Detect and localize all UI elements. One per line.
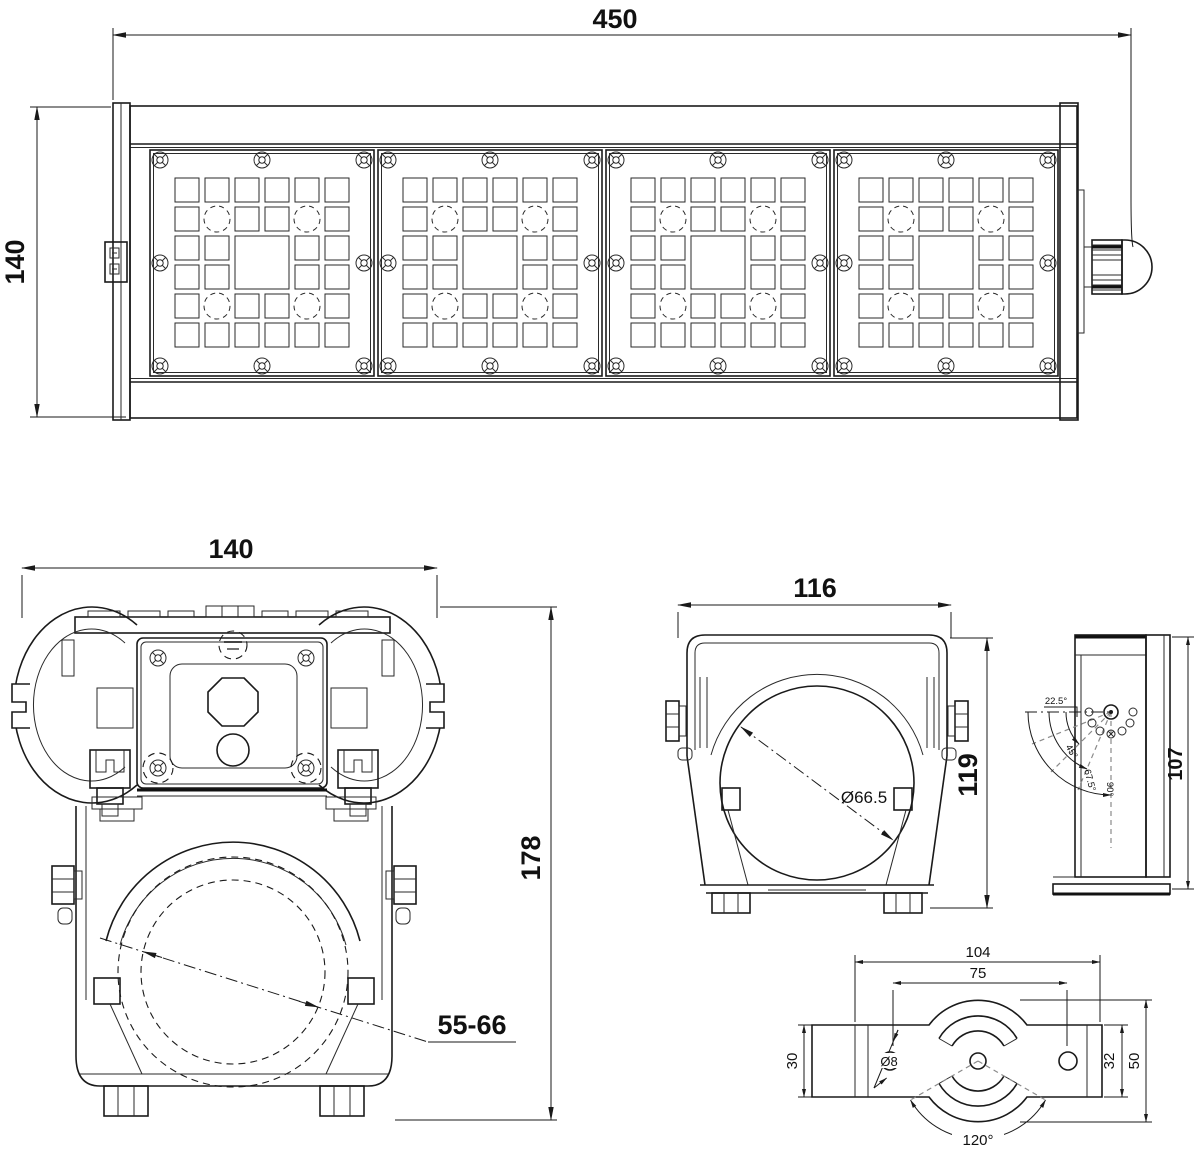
pole-circle-55 [141,880,325,1064]
bracket-front-view: 116 119 [666,573,993,913]
left-ear [2,607,137,803]
led-module-3 [606,150,830,376]
dim-plate-inner-height-label: 32 [1101,1053,1118,1070]
fixture-housing [105,103,1152,420]
left-connector [105,242,127,282]
bracket-side-view: 107 22.5° 45° 67.5° 90° [1025,635,1194,894]
dim-slot-angle-label: 120° [962,1132,993,1149]
bottom-hole [217,734,249,766]
dim-plate-inner-height: 32 [1101,1025,1128,1097]
bolt-right [386,866,416,924]
mount-plate-view: 104 75 30 32 50 [784,944,1152,1149]
arc-slot-upper [939,1016,1017,1046]
dim-plate-left-height: 30 [784,1025,812,1097]
led-module-1 [150,150,374,376]
led-module-2 [378,150,602,376]
clamp-left [90,750,130,816]
angle-90-label: 90° [1104,782,1115,797]
dim-hole-dia-label: Ø8 [880,1054,897,1069]
dim-hole-spacing: 75 [893,965,1067,1046]
dim-front-width-label: 450 [592,4,637,34]
angle-67-label: 67.5° [1081,768,1097,793]
dim-bore-label: Ø66.5 [841,788,887,807]
led-module-4 [834,150,1058,376]
right-end-cap [1060,103,1078,420]
bracket-body [666,635,968,913]
dim-hole-dia: Ø8 [874,1030,901,1088]
dim-pole-range: 55-66 [100,938,516,1042]
bolt-left [52,866,82,924]
dim-side-height-label: 107 [1165,747,1187,780]
stamp-mark [219,631,247,659]
center-plate [137,631,327,796]
angle-22-label: 22.5° [1045,696,1067,707]
end-view: 140 178 [2,534,557,1120]
dim-slot-angle: 120° [911,1061,1046,1149]
dim-bracket-width: 116 [678,573,951,638]
dim-plate-overall-height-label: 50 [1126,1053,1143,1070]
dim-hole-spacing-label: 75 [970,965,987,982]
dim-front-height-label: 140 [0,239,30,284]
dim-end-height-label: 178 [516,835,546,880]
dim-end-height: 178 [395,607,557,1120]
dim-plate-left-height-label: 30 [784,1053,801,1070]
dim-bracket-height-label: 119 [953,753,983,797]
dim-front-width: 450 [113,4,1133,247]
right-ear [319,607,454,803]
clamp-right [338,750,378,816]
dim-pole-range-label: 55-66 [437,1010,506,1040]
dim-plate-overall-width-label: 104 [965,944,990,961]
arc-slot-lower [939,1076,1017,1106]
pole-circle-66 [118,857,348,1087]
dim-end-width: 140 [22,534,437,618]
heatsink-profile [2,606,454,816]
dim-front-height: 140 [0,107,126,417]
bracket-bolt-left [666,701,692,760]
hex-hole [208,678,258,726]
cable-gland [1084,240,1152,294]
dim-bore: Ø66.5 [741,727,893,840]
bracket-bolt-right [942,701,968,760]
plate-hole-right [1059,1052,1077,1070]
end-view-bracket [52,797,416,1116]
drawing-page: 450 140 [0,0,1200,1150]
dim-bracket-width-label: 116 [793,573,837,603]
technical-drawing: 450 140 [0,0,1200,1150]
front-view: 450 140 [0,4,1152,420]
dim-end-width-label: 140 [208,534,253,564]
dim-plate-overall-height: 50 [1020,1000,1152,1122]
